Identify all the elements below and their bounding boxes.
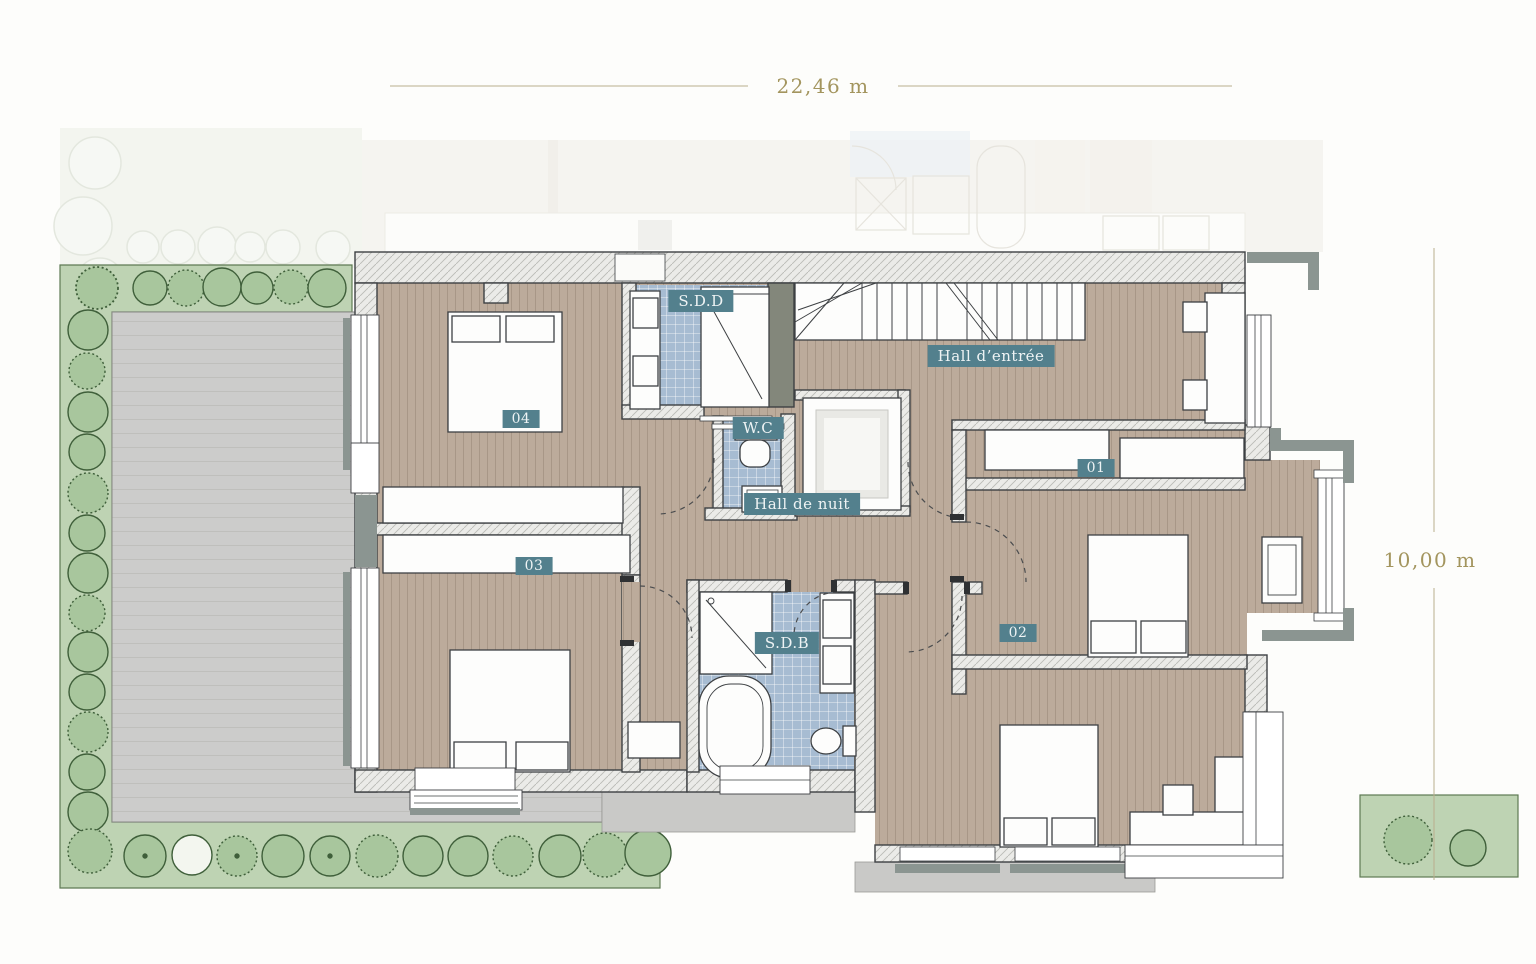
sink (823, 646, 851, 684)
height-dimension-label: 10,00 m (1369, 548, 1490, 572)
room03-door-gap (622, 582, 640, 642)
room-label-sdb: S.D.B (755, 632, 819, 654)
wardrobe (383, 535, 630, 573)
sdb-toilet (811, 726, 856, 756)
desk-02 (1262, 537, 1302, 603)
wardrobe (383, 487, 623, 523)
bathtub (699, 676, 771, 778)
bed-03 (450, 650, 570, 772)
bed-02 (1088, 535, 1188, 657)
room-label-03: 03 (516, 557, 553, 575)
width-dimension-label: 22,46 m (762, 74, 883, 98)
room-label-hall-entree: Hall d’entrée (928, 345, 1055, 367)
floor-plan: 22,46 m 10,00 m S.D.D W.C Hall d’entrée … (0, 0, 1536, 964)
room-label-02: 02 (1000, 624, 1037, 642)
wardrobe (1120, 438, 1244, 478)
side-table (628, 722, 680, 758)
room-label-sdd: S.D.D (668, 290, 733, 312)
wardrobe (1205, 293, 1245, 423)
floor-plan-drawing (0, 0, 1536, 964)
toilet (740, 440, 770, 467)
room-label-04: 04 (503, 410, 540, 428)
chair (1163, 785, 1193, 815)
bed-bottom-room (1000, 725, 1098, 847)
room-label-wc: W.C (733, 417, 784, 439)
room-label-hall-nuit: Hall de nuit (744, 493, 860, 515)
top-wall-opening (615, 254, 665, 281)
room-label-01: 01 (1078, 459, 1115, 477)
sink (823, 600, 851, 638)
sink (633, 356, 658, 386)
sink (633, 298, 658, 328)
